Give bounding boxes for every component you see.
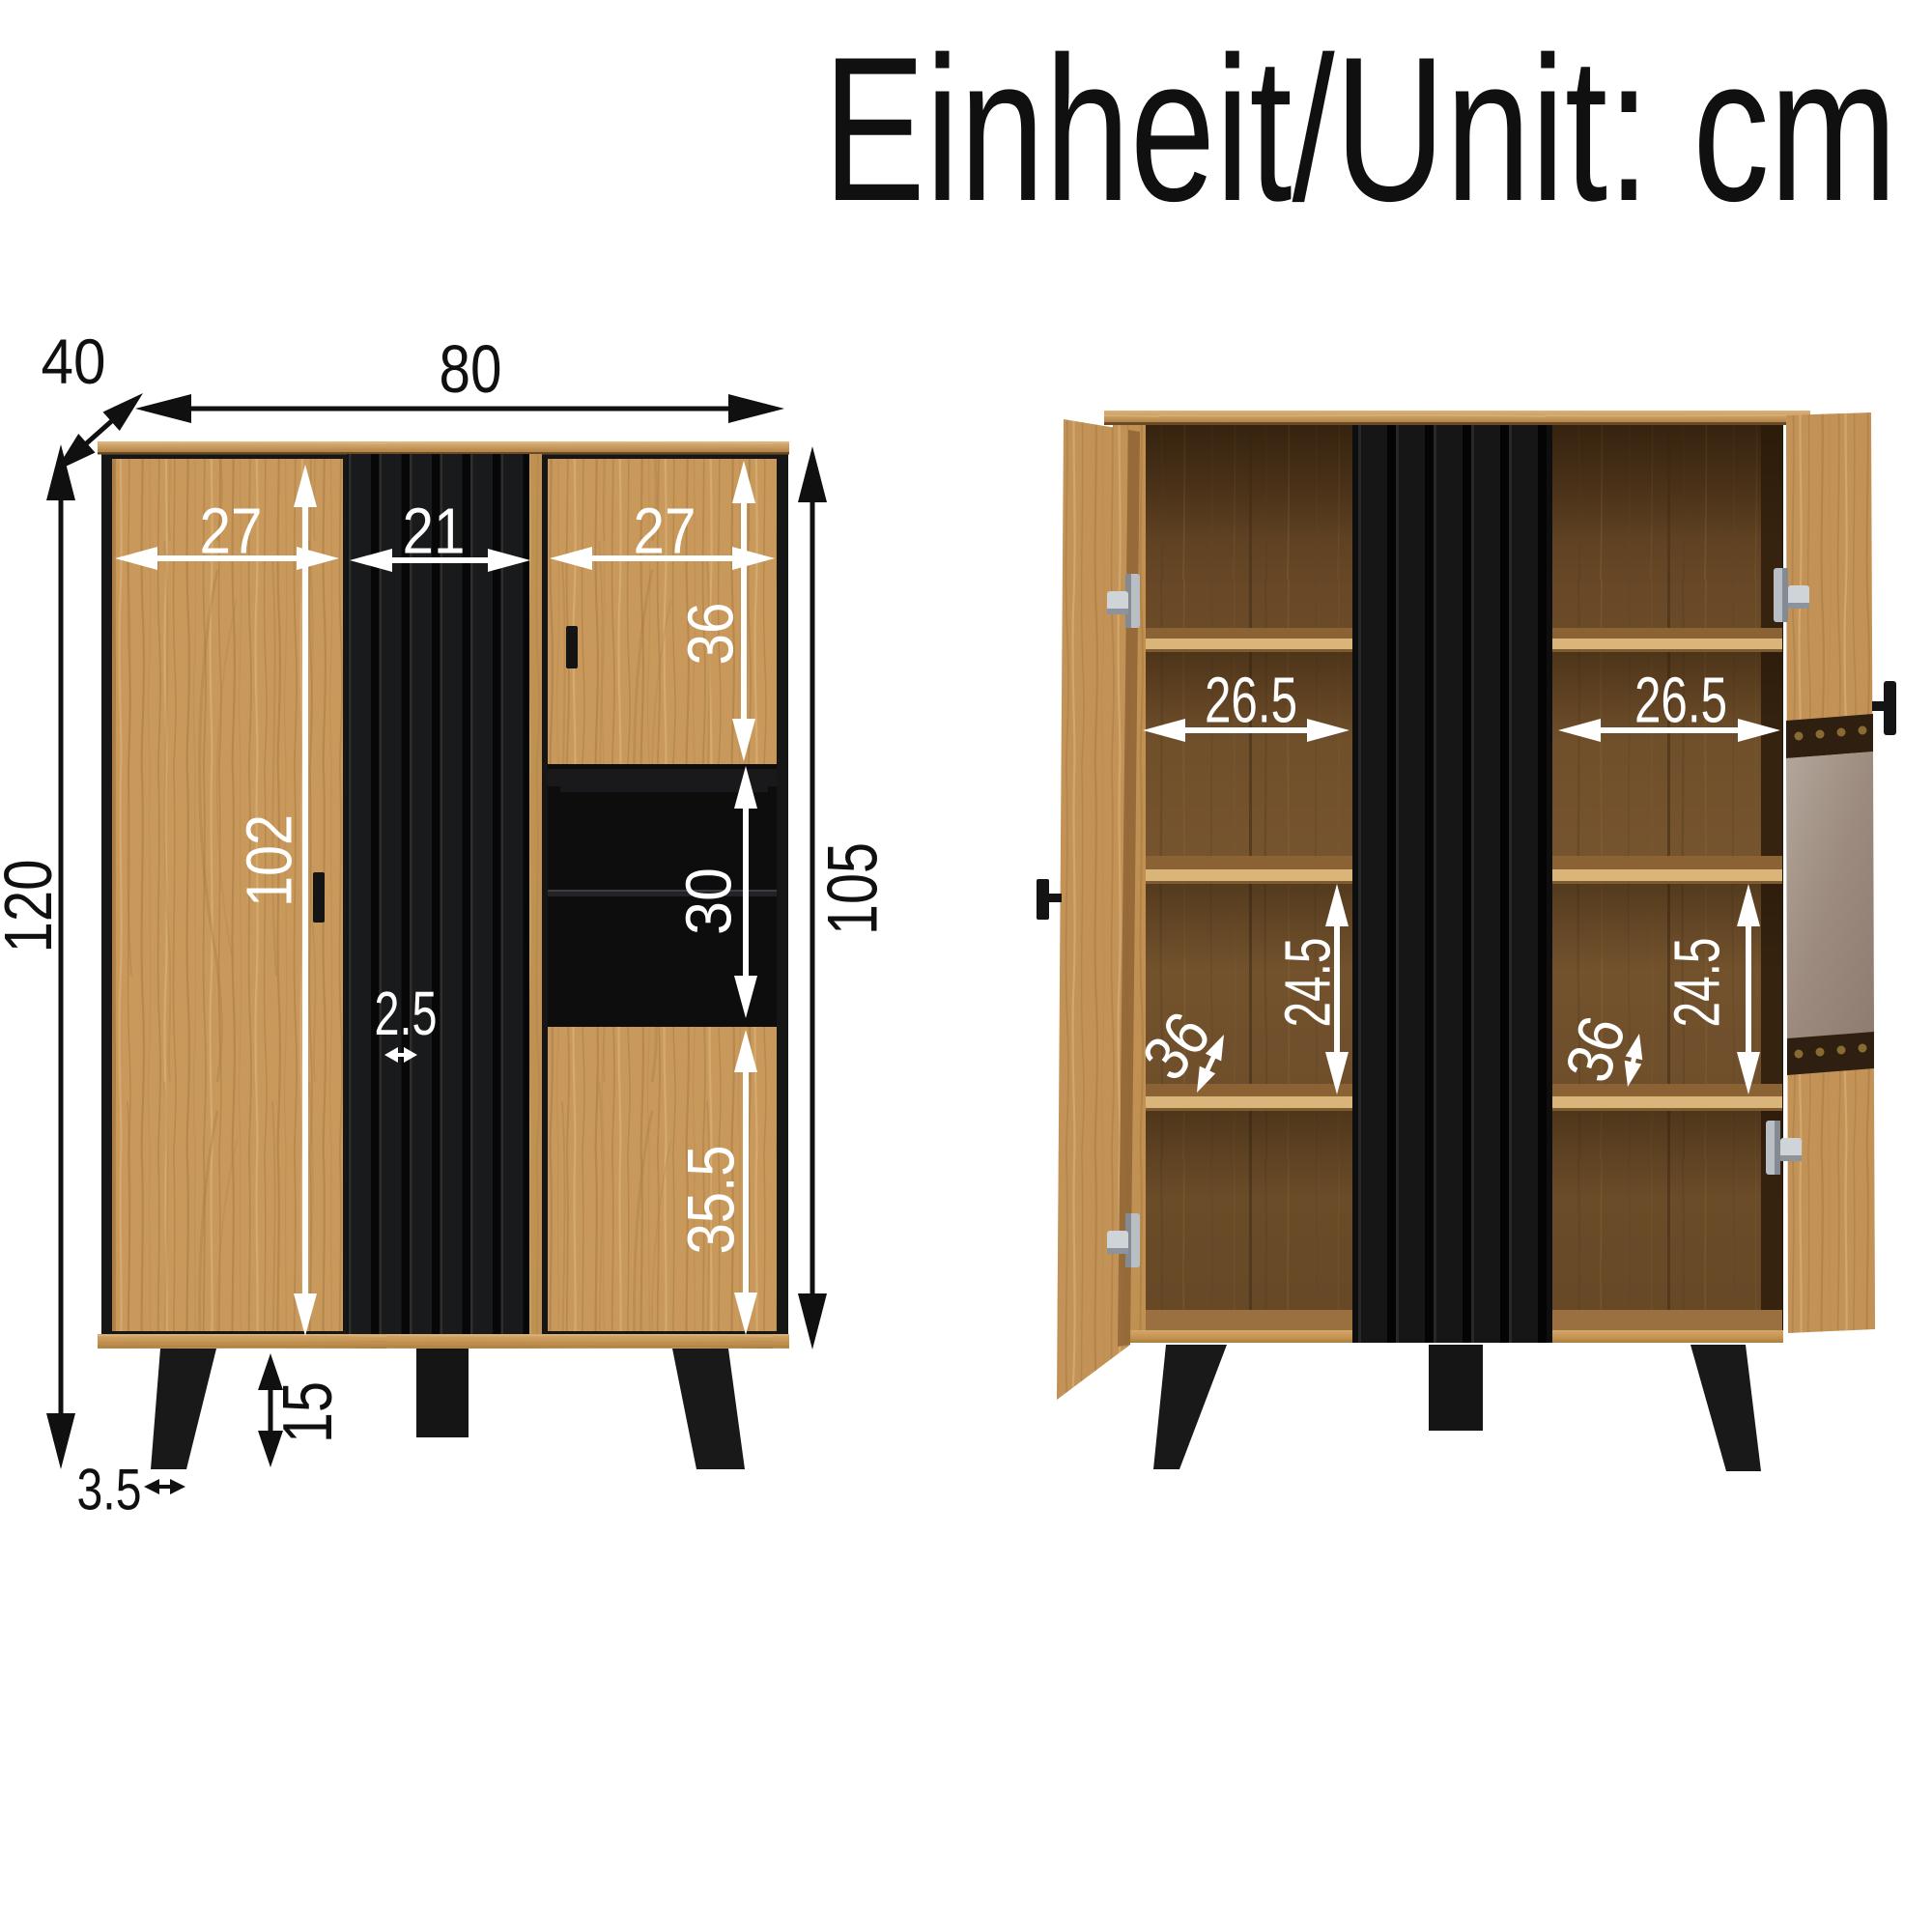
svg-text:21: 21	[403, 496, 466, 568]
svg-text:24.5: 24.5	[1662, 938, 1734, 1028]
svg-text:27: 27	[200, 496, 263, 568]
svg-text:Einheit/Unit: cm: Einheit/Unit: cm	[823, 14, 1897, 244]
svg-text:120: 120	[0, 860, 66, 953]
svg-text:102: 102	[234, 814, 306, 907]
svg-text:2.5: 2.5	[375, 979, 438, 1048]
svg-text:27: 27	[634, 496, 696, 568]
svg-text:15: 15	[270, 1381, 347, 1443]
svg-text:80: 80	[440, 331, 502, 407]
svg-text:26.5: 26.5	[1205, 665, 1297, 737]
svg-text:3.5: 3.5	[77, 1458, 142, 1522]
svg-text:30: 30	[673, 867, 746, 935]
svg-text:26.5: 26.5	[1634, 665, 1727, 737]
svg-text:36: 36	[675, 603, 748, 666]
svg-text:40: 40	[42, 326, 106, 397]
svg-text:24.5: 24.5	[1272, 938, 1345, 1028]
svg-text:35.5: 35.5	[674, 1146, 749, 1255]
svg-text:105: 105	[814, 842, 893, 935]
